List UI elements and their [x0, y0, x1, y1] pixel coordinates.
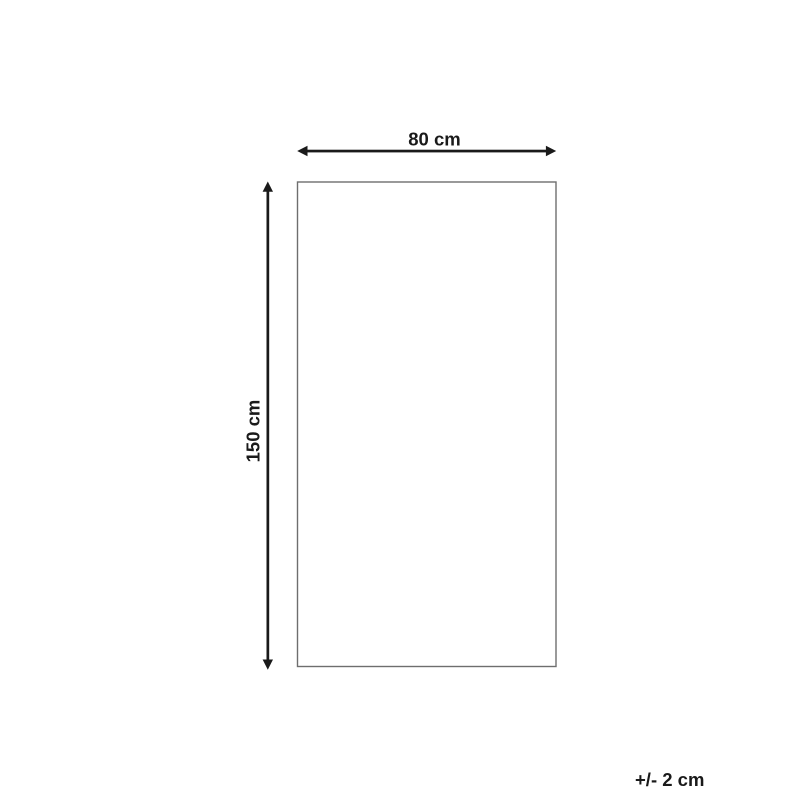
svg-text:150 cm: 150 cm — [243, 400, 264, 463]
svg-text:80 cm: 80 cm — [408, 129, 460, 150]
svg-text:+/- 2 cm: +/- 2 cm — [635, 769, 704, 790]
